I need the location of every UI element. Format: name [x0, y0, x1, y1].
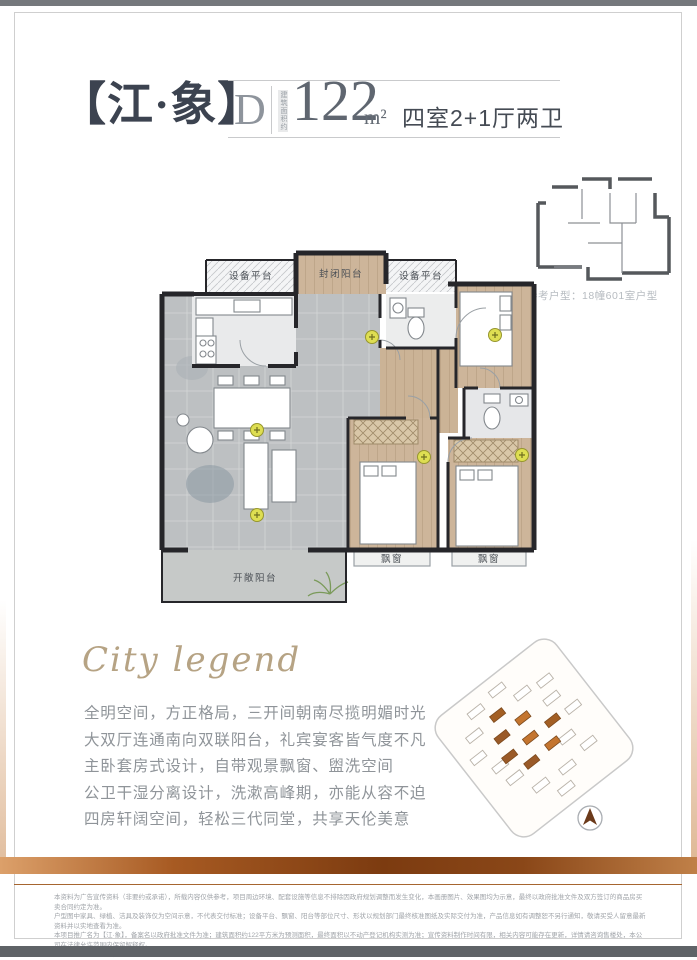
label-equipment-platform-left: 设备平台 [229, 270, 273, 282]
description-line: 主卧套房式设计，自带观景飘窗、盥洗空间 [84, 754, 426, 781]
main-floorplan: 设备平台 封闭阳台 设备平台 开敞阳台 飘窗 飘窗 [148, 248, 546, 616]
label-bay-window-left: 飘窗 [381, 553, 403, 565]
description-line: 大双厅连通南向双联阳台，礼宾宴客皆气度不凡 [84, 728, 426, 755]
top-bar [0, 0, 697, 6]
disclaimer-line: 户型图中家具、绿植、洁具及装饰仅为空间示意，不代表交付标准；设备平台、飘窗、阳台… [54, 912, 648, 931]
description-line: 公卫干湿分离设计，洗漱高峰期，亦能从容不迫 [84, 781, 426, 808]
label-open-balcony: 开敞阳台 [233, 572, 277, 584]
left-edge-gradient [0, 600, 6, 858]
right-edge-gradient [691, 540, 697, 858]
title-hairline-bottom [228, 137, 560, 138]
site-plan-boundary [429, 636, 640, 843]
description-line: 四房轩阔空间，轻松三代同堂，共享天伦美意 [84, 807, 426, 834]
area-prefix-vertical: 建筑面积约 [278, 90, 288, 132]
divider-line [14, 884, 682, 885]
label-bay-window-right: 飘窗 [478, 553, 500, 565]
title-vertical-divider [271, 86, 272, 134]
label-equipment-platform-right: 设备平台 [399, 270, 443, 282]
mini-floorplan-caption: 参考户型：18幢601室户型 [527, 288, 658, 303]
bottom-bar [0, 946, 697, 957]
area-unit: m² [364, 105, 387, 130]
title-hairline-top [228, 80, 560, 81]
compass-icon [578, 806, 602, 830]
mini-floorplan-walls [538, 179, 669, 279]
mini-floorplan [524, 163, 678, 285]
room-config: 四室2+1厅两卫 [402, 99, 564, 133]
gradient-bar [0, 857, 697, 874]
mini-floorplan-partitions [554, 189, 636, 273]
unit-letter: D [234, 88, 266, 132]
label-enclosed-balcony: 封闭阳台 [319, 268, 363, 280]
description-line: 全明空间，方正格局，三开间朝南尽揽明媚时光 [84, 701, 426, 728]
disclaimer-line: 本资料为广告宣传资料（非要约或承诺），所载内容仅供参考，项目周边环境、配套设施等… [54, 893, 648, 912]
site-plan [424, 636, 666, 854]
tagline-script: City legend [82, 640, 301, 680]
description-block: 全明空间，方正格局，三开间朝南尽揽明媚时光 大双厅连通南向双联阳台，礼宾宴客皆气… [84, 701, 426, 834]
